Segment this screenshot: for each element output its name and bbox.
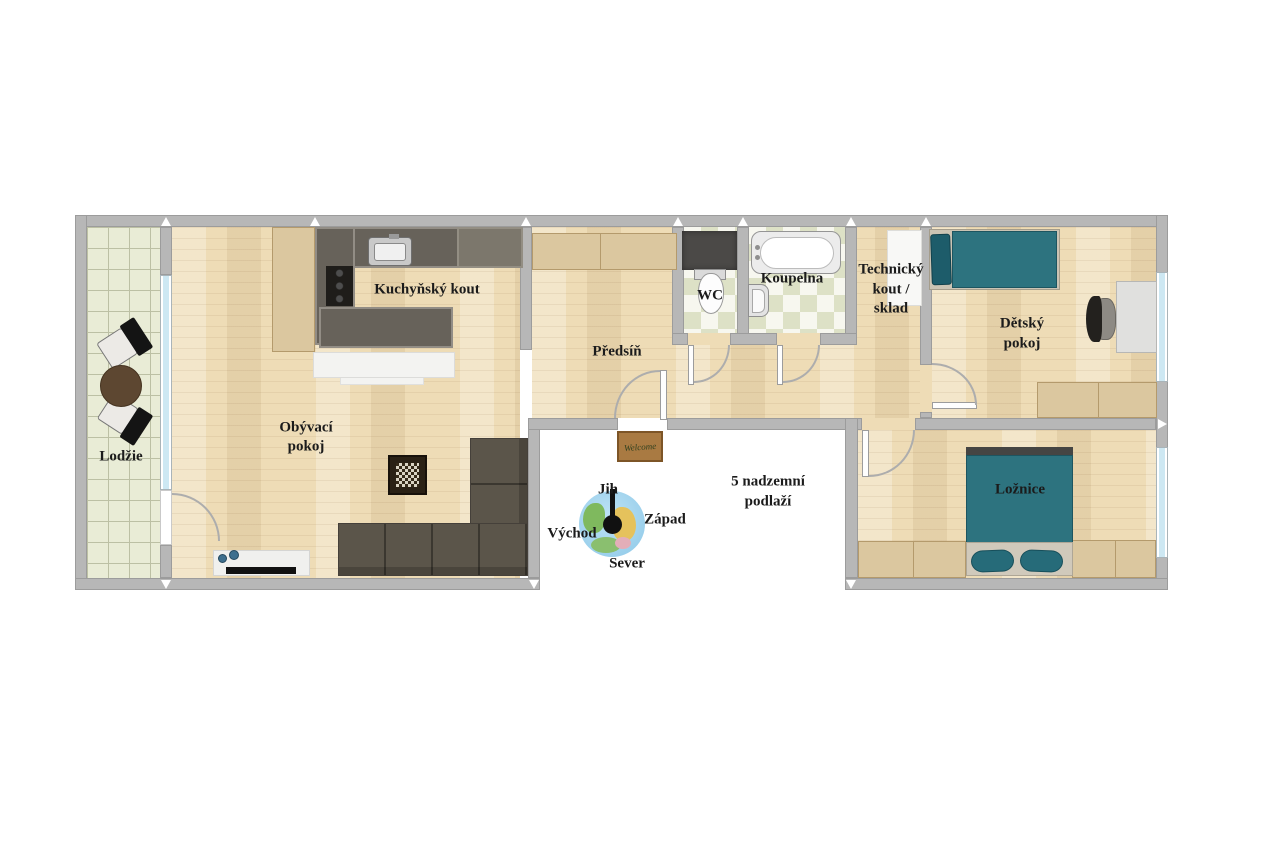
kids-bed-mattress xyxy=(952,231,1057,288)
wall xyxy=(730,333,777,345)
kitchen-sink xyxy=(368,237,412,266)
bed-pillow xyxy=(1020,549,1064,572)
kitchen-counter-bottom xyxy=(319,307,453,348)
wall xyxy=(75,578,540,590)
wall-joint-mark xyxy=(846,217,856,226)
bathtub-basin xyxy=(760,237,834,269)
bedroom-wardrobe xyxy=(858,541,966,578)
sofa-section-horizontal xyxy=(338,523,528,576)
entrance-door xyxy=(660,370,667,420)
floor-plan: Welcome Jih Západ Východ xyxy=(0,0,1280,853)
kids-room-door-opening xyxy=(920,365,932,412)
doormat-text: Welcome xyxy=(624,440,657,452)
wall xyxy=(75,215,1168,227)
kids-desk xyxy=(1116,281,1157,353)
compass-hub xyxy=(603,515,622,534)
room-label-kids-line2: pokoj xyxy=(1004,336,1041,353)
wardrobe-divider xyxy=(913,541,914,578)
wall xyxy=(667,418,862,430)
balcony-door xyxy=(160,490,172,545)
bed-headboard xyxy=(966,447,1073,455)
wall-joint-mark xyxy=(673,217,683,226)
loggia-window xyxy=(160,275,172,490)
wc-door-opening xyxy=(688,333,730,345)
wall-joint-mark xyxy=(921,217,931,226)
kitchen-lower-cabinet xyxy=(313,352,455,378)
sink-faucet xyxy=(389,234,399,239)
kitchen-lower-cabinet-step xyxy=(340,378,424,385)
compass-label-north: Sever xyxy=(609,556,645,573)
double-bed-mattress xyxy=(966,455,1073,543)
wall xyxy=(845,418,858,578)
bathtub-faucet xyxy=(755,255,760,260)
floor-level-label-line2: podlaží xyxy=(745,494,792,511)
wall-joint-mark xyxy=(310,217,320,226)
wall-joint-mark xyxy=(521,217,531,226)
wall-joint-mark xyxy=(1158,419,1167,429)
bathroom-door-opening xyxy=(777,333,820,345)
kids-wardrobe xyxy=(1037,382,1157,418)
wall xyxy=(528,418,540,578)
room-label-bedroom: Ložnice xyxy=(995,482,1045,499)
kids-room-window xyxy=(1156,272,1168,382)
washer xyxy=(682,231,737,270)
room-label-wc: WC xyxy=(697,288,723,305)
globe-landmass xyxy=(615,537,631,549)
room-label-kitchen: Kuchyňský kout xyxy=(374,282,479,299)
wall-joint-mark xyxy=(161,217,171,226)
wall xyxy=(845,227,857,345)
bedroom-door-opening xyxy=(862,418,915,430)
chessboard-pattern xyxy=(396,463,419,487)
sink-basin xyxy=(374,243,406,261)
desk-chair-back xyxy=(1086,296,1102,342)
room-label-hall: Předsíň xyxy=(592,344,641,361)
room-label-kids-line1: Dětský xyxy=(1000,316,1044,333)
wall xyxy=(528,418,618,430)
room-label-bathroom: Koupelna xyxy=(761,271,824,288)
wardrobe-divider xyxy=(600,233,601,270)
cooktop xyxy=(326,266,353,306)
room-label-living-line2: pokoj xyxy=(288,439,325,456)
tv-stand-decor xyxy=(229,550,239,560)
bathroom-sink xyxy=(748,284,769,317)
wall-joint-mark xyxy=(846,580,856,589)
wall-joint-mark xyxy=(161,580,171,589)
hallway-wardrobe xyxy=(532,233,677,270)
tv-stand-decor xyxy=(218,554,227,563)
kitchen-tall-cabinet xyxy=(272,227,315,352)
wall xyxy=(845,578,1168,590)
room-label-loggia: Lodžie xyxy=(99,449,142,466)
bathtub xyxy=(751,231,841,274)
compass-label-south: Jih xyxy=(598,482,618,499)
room-label-tech-line3: sklad xyxy=(874,301,908,318)
wardrobe-divider xyxy=(1098,382,1099,418)
chess-table xyxy=(388,455,427,495)
wardrobe-divider xyxy=(1115,540,1116,578)
wall xyxy=(820,333,857,345)
loggia-table xyxy=(100,365,142,407)
wall xyxy=(160,545,172,578)
room-label-living-line1: Obývací xyxy=(279,420,332,437)
tv xyxy=(226,567,296,574)
compass-label-west: Západ xyxy=(644,512,686,529)
wall xyxy=(915,418,1156,430)
doormat: Welcome xyxy=(617,431,663,462)
room-label-tech-line1: Technický xyxy=(858,262,923,279)
sink-basin xyxy=(752,289,765,313)
kitchen-counter-light-section xyxy=(457,227,523,268)
bed-pillow xyxy=(971,549,1015,572)
wall xyxy=(160,227,172,275)
room-label-tech-line2: kout / xyxy=(872,282,909,299)
bedroom-door xyxy=(862,430,869,477)
kids-bed-pillow xyxy=(930,234,952,286)
bedroom-wardrobe xyxy=(1072,540,1156,578)
bathtub-faucet xyxy=(755,245,760,250)
wall xyxy=(920,412,932,418)
compass-label-east: Východ xyxy=(547,526,596,543)
wall xyxy=(75,215,87,590)
floor-level-label-line1: 5 nadzemní xyxy=(731,474,805,491)
bedroom-window xyxy=(1156,447,1168,558)
wall-joint-mark xyxy=(738,217,748,226)
wall-joint-mark xyxy=(529,580,539,589)
wall xyxy=(672,333,688,345)
